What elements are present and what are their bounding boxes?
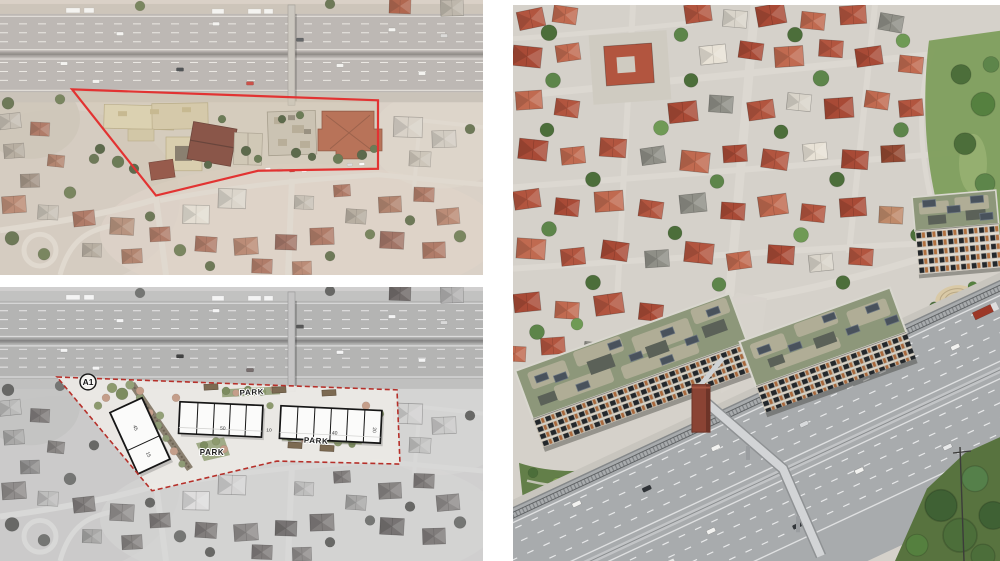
elevator-tower [692,385,710,433]
unit-number: 10 [266,427,272,433]
park-label: PARK [200,448,224,457]
unit-number: 40 [332,430,338,436]
residential-block-c [912,190,1000,278]
unit-number: 20 [371,427,377,433]
proposed-block-middle: 50 [178,402,265,440]
zone-label: A1 [83,377,94,387]
park-label: PARK [239,387,264,397]
presentation-board: 45 15 50 40 20 10 A1 PARK PARK PARK [0,0,1000,561]
zone-marker: A1 [80,374,96,390]
site-plan-panel: 45 15 50 40 20 10 A1 PARK PARK PARK [0,287,483,561]
aerial-photo-panel [0,0,483,275]
proposed-block-right: 40 20 [279,406,384,447]
park-label: PARK [304,436,329,446]
unit-number: 50 [220,426,226,432]
aerial-render-panel [513,5,1000,561]
